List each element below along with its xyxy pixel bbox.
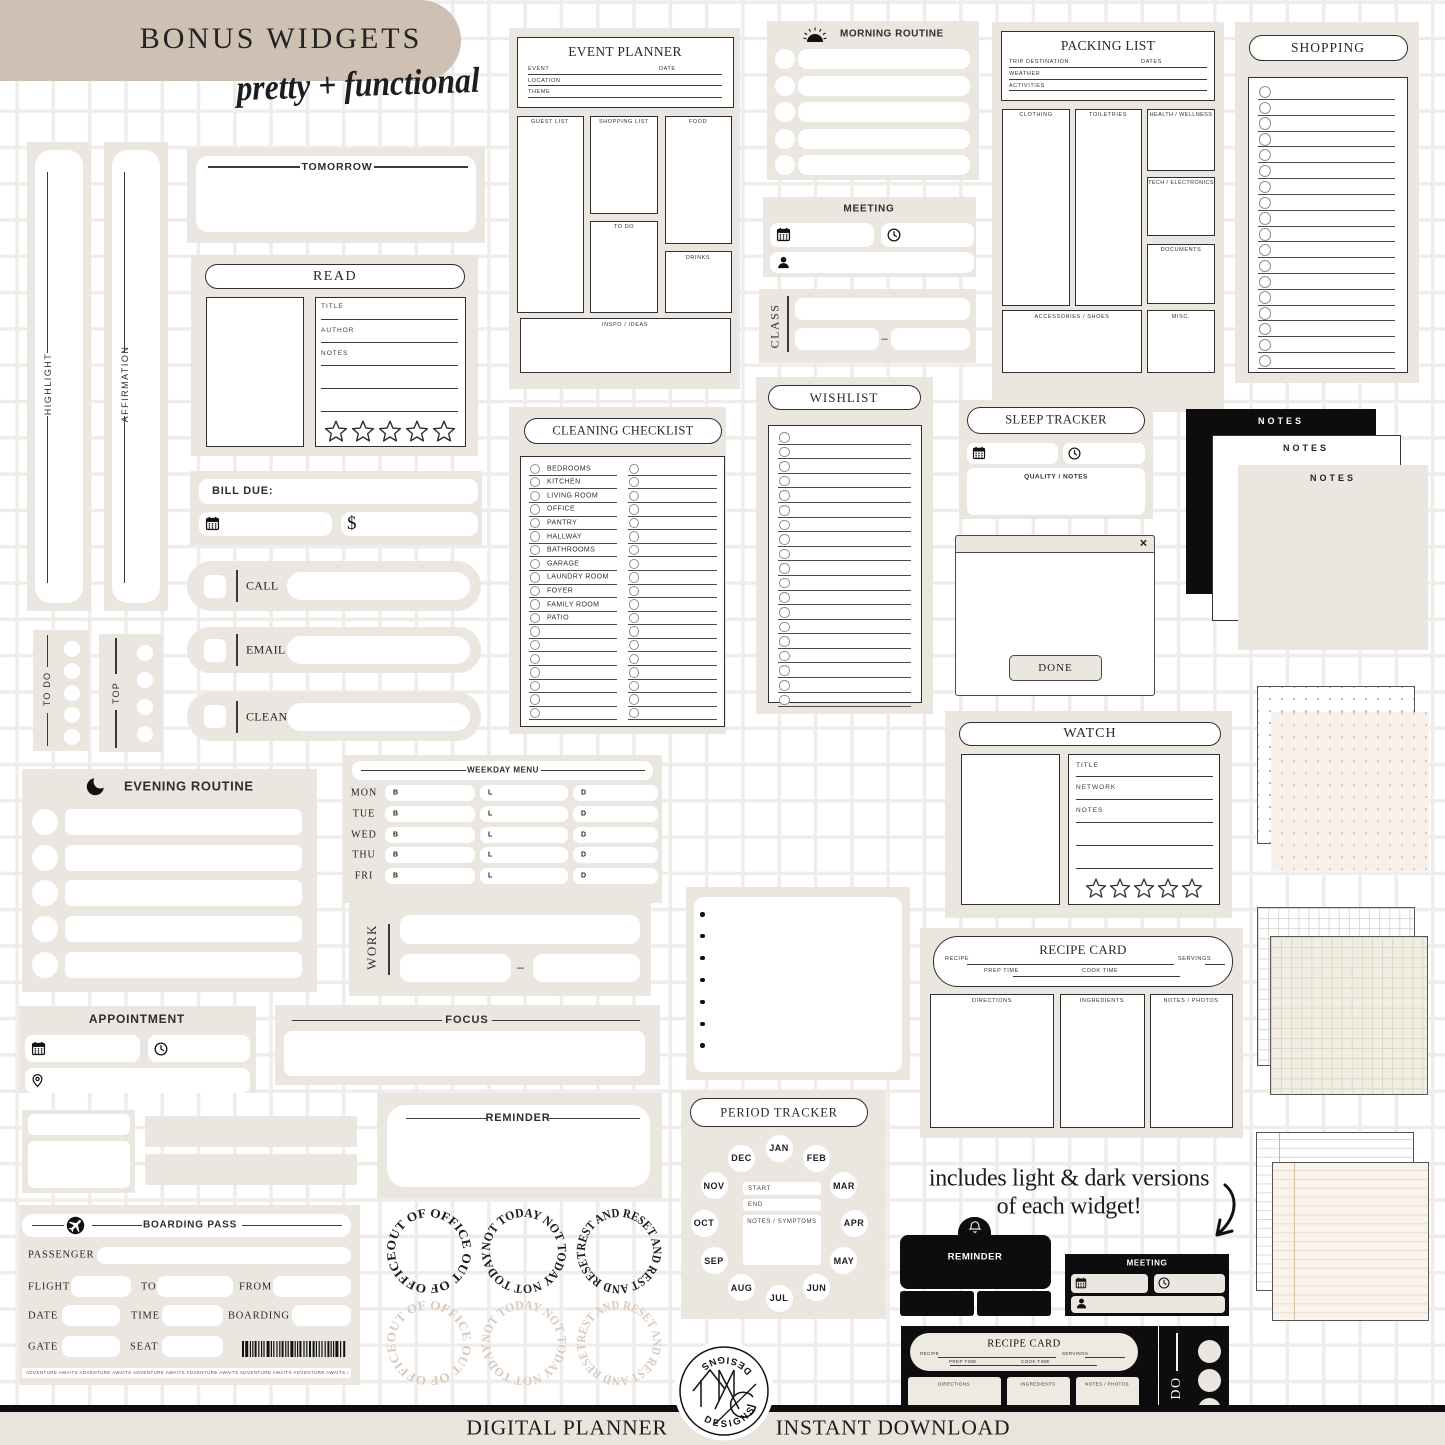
svg-text:REST AND RESET AND REST AND RE: REST AND RESET AND REST AND RESET [574,1206,664,1296]
svg-text:OUT OF OFFICE OUT OF OFFICE: OUT OF OFFICE OUT OF OFFICE [384,1206,474,1296]
svg-text:REST AND RESET AND REST AND RE: REST AND RESET AND REST AND RESET [574,1298,664,1388]
svg-text:OUT OF OFFICE OUT OF OFFICE: OUT OF OFFICE OUT OF OFFICE [384,1298,474,1388]
svg-text:NOT TODAY NOT TODAY NOT TODAY: NOT TODAY NOT TODAY NOT TODAY [479,1298,569,1388]
svg-text:NOT TODAY NOT TODAY NOT TODAY: NOT TODAY NOT TODAY NOT TODAY [479,1206,569,1296]
